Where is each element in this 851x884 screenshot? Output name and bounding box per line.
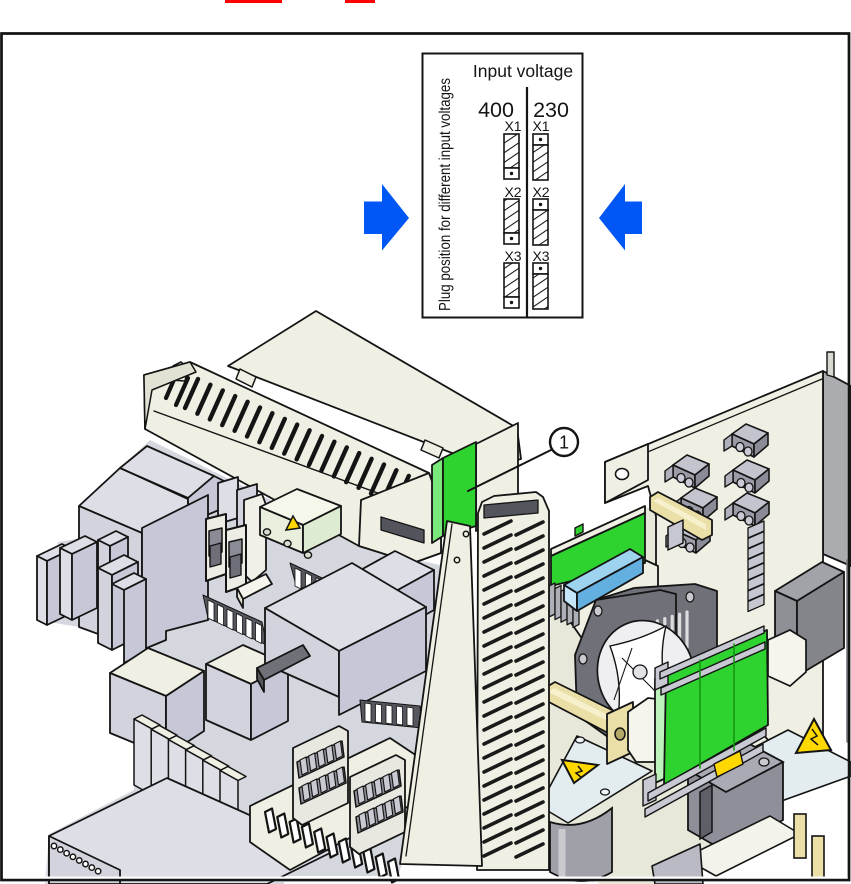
svg-text:1: 1 [559, 433, 569, 453]
svg-text:X2: X2 [532, 184, 549, 200]
svg-text:X2: X2 [504, 184, 521, 200]
svg-text:X1: X1 [504, 118, 521, 134]
svg-text:Input voltage: Input voltage [473, 61, 573, 81]
svg-text:X1: X1 [532, 118, 549, 134]
svg-text:X3: X3 [504, 248, 521, 264]
svg-text:Plug position for different in: Plug position for different input voltag… [437, 78, 454, 311]
svg-text:X3: X3 [532, 248, 549, 264]
